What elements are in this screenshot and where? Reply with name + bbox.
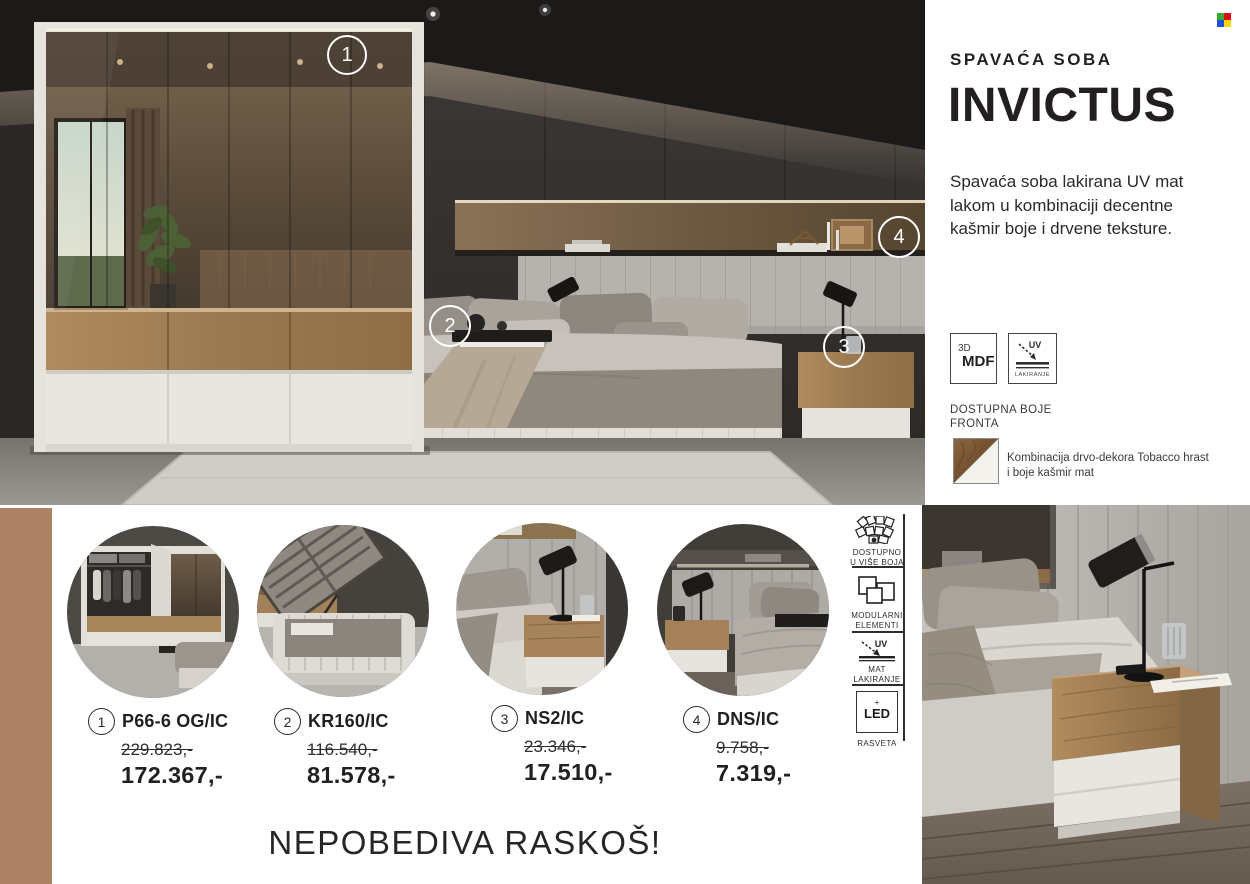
photo-marker-1: 1 (327, 35, 367, 75)
product-old-price: 229.823,- (121, 740, 278, 760)
nightstand-photo-art (922, 505, 1250, 884)
product-item-4: 4 DNS/IC 9.758,- 7.319,- (683, 706, 873, 787)
nightstand-detail-photo (922, 505, 1250, 884)
logo-square-green (1217, 13, 1224, 20)
product-item-1: 1 P66-6 OG/IC 229.823,- 172.367,- (88, 708, 278, 789)
thumbnail-wardrobe-art (67, 526, 239, 698)
product-description: Spavaća soba lakirana UV mat lakom u kom… (950, 170, 1208, 241)
product-code: NS2/IC (525, 708, 584, 729)
product-price: 81.578,- (307, 762, 464, 789)
product-price: 7.319,- (716, 760, 873, 787)
features-divider-2 (852, 631, 904, 633)
uv-coating-icon-small: UV (856, 638, 898, 662)
feature-modular: MODULARNI ELEMENTI (846, 575, 908, 631)
product-item-3: 3 NS2/IC 23.346,- 17.510,- (491, 705, 681, 786)
product-code: P66-6 OG/IC (122, 711, 228, 732)
product-number-badge: 2 (274, 708, 301, 735)
tagline: NEPOBEDIVA RASKOŠ! (240, 824, 690, 862)
product-code: DNS/IC (717, 709, 779, 730)
product-old-price: 23.346,- (524, 737, 681, 757)
thumbnail-nightstand (456, 523, 628, 695)
photo-marker-4: 4 (878, 216, 920, 258)
thumbnail-bed-storage (257, 525, 429, 697)
product-old-price: 9.758,- (716, 738, 873, 758)
category-label: SPAVAĆA SOBA (950, 50, 1113, 70)
badge-uv-sub-label: LAKIRANJE (1009, 372, 1056, 378)
product-old-price: 116.540,- (307, 740, 464, 760)
modular-squares-icon (857, 575, 897, 607)
front-color-swatch (953, 438, 999, 484)
bedroom-photo: 1 2 3 4 (0, 0, 925, 505)
product-price: 17.510,- (524, 759, 681, 786)
thumbnail-bed-art (257, 525, 429, 697)
svg-text:UV: UV (1029, 340, 1042, 350)
logo-square-yellow (1224, 20, 1231, 27)
product-code: KR160/IC (308, 711, 389, 732)
page-title: INVICTUS (948, 78, 1176, 133)
badge-mdf-label: MDF (962, 353, 995, 370)
feature-colors: DOSTUPNO U VIŠE BOJA (846, 516, 908, 568)
color-fan-icon (855, 516, 899, 544)
photo-marker-2: 2 (429, 305, 471, 347)
product-price: 172.367,- (121, 762, 278, 789)
swatch-caption: Kombinacija drvo-dekora Tobacco hrast i … (1007, 451, 1212, 481)
bedroom-photo-art (0, 0, 925, 505)
thumbnail-nightstand-bed-art (657, 524, 829, 696)
thumbnail-nightstand-art (456, 523, 628, 695)
product-number-badge: 3 (491, 705, 518, 732)
photo-marker-3: 3 (823, 326, 865, 368)
product-number-badge: 1 (88, 708, 115, 735)
badge-uv-lakiranje: UV LAKIRANJE (1008, 333, 1057, 384)
badge-3d-mdf: 3D MDF (950, 333, 997, 384)
product-item-2: 2 KR160/IC 116.540,- 81.578,- (274, 708, 464, 789)
thumbnail-wardrobe (67, 526, 239, 698)
fronts-heading: DOSTUPNA BOJE FRONTA (950, 403, 1052, 431)
product-number-badge: 4 (683, 706, 710, 733)
feature-mat-lakiranje: UV MAT LAKIRANJE (846, 638, 908, 685)
catalog-page: 1 2 3 4 SPAVAĆA SOBA INVICTUS Spavaća so… (0, 0, 1250, 884)
logo-square-blue (1217, 20, 1224, 27)
brand-logo-icon (1217, 13, 1231, 27)
logo-square-red (1224, 13, 1231, 20)
thumbnail-nightstand-bed (657, 524, 829, 696)
swatch-art (953, 438, 999, 484)
svg-text:UV: UV (875, 639, 888, 649)
accent-side-stripe (0, 508, 52, 884)
